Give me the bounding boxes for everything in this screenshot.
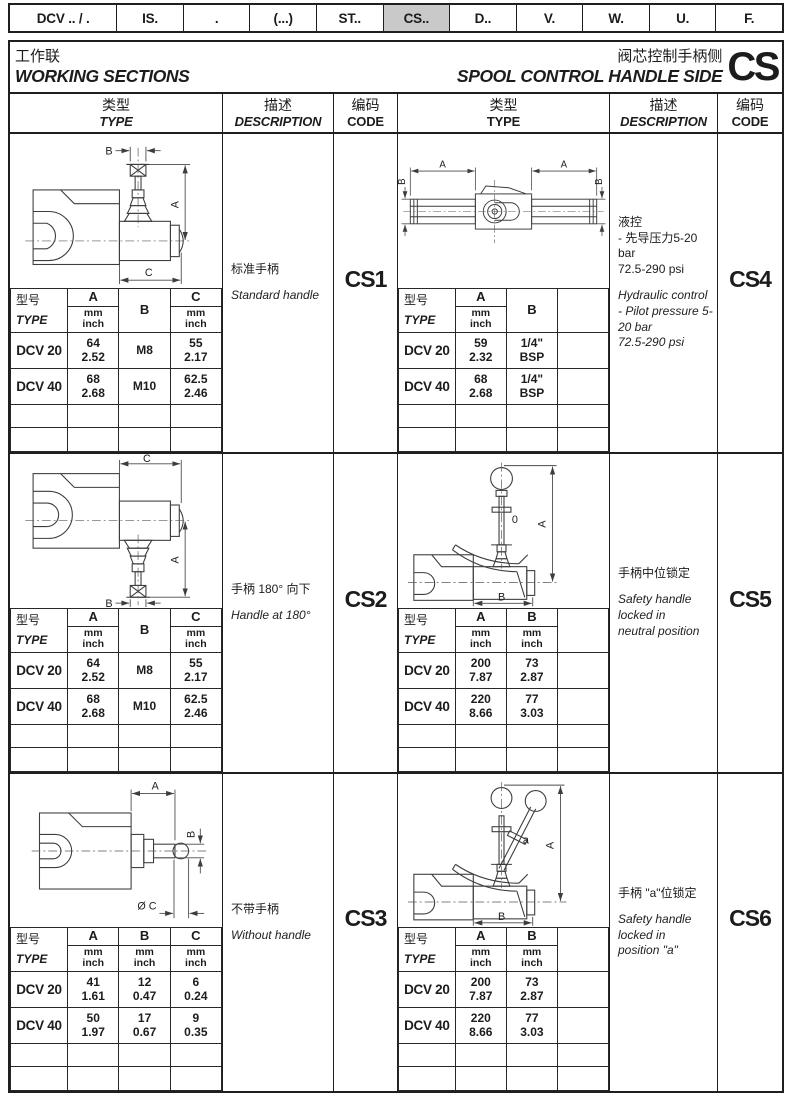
dim-column-letter: B <box>506 927 557 945</box>
dim-column-letter: B <box>119 608 170 652</box>
dim-value: 2007.87 <box>455 972 506 1008</box>
dim-column-letter: A <box>455 608 506 626</box>
dim-value: 120.47 <box>119 972 170 1008</box>
dim-label: A <box>537 520 549 528</box>
dim-value: 732.87 <box>506 653 557 689</box>
section-title-zh: 工作联 <box>15 48 189 65</box>
tab-[interactable]: . <box>184 5 251 31</box>
dim-column-letter: A <box>455 927 506 945</box>
empty-row <box>399 748 609 772</box>
model-code-tab-strip: DCV .. / .IS..(...)ST..CS..D..V.W.U.F. <box>8 3 784 33</box>
dimension-table: 型号TYPEAB mminchDCV 20592.321/4" BSPDCV 4… <box>398 288 609 452</box>
dim-value: 773.03 <box>506 689 557 725</box>
cs1-code-cell: CS1 <box>334 134 398 452</box>
content-row-2: CAB 型号TYPEABC mminchmminchDCV 20642.52M8… <box>10 454 782 774</box>
dim-value: 501.97 <box>67 1008 118 1044</box>
dim-column-units: mminch <box>170 626 221 653</box>
dim-column-letter: A <box>67 288 118 306</box>
table-row: DCV 20411.61120.4760.24 <box>11 972 222 1008</box>
dim-column-letter: B <box>119 927 170 945</box>
empty-row <box>399 1067 609 1091</box>
cs4-description-cell: 液控 - 先导压力5-20 bar 72.5-290 psi Hydraulic… <box>610 134 718 452</box>
section-subtitle: 阀芯控制手柄侧 SPOOL CONTROL HANDLE SIDE <box>457 48 723 85</box>
dim-value: 552.17 <box>170 333 221 369</box>
cs2-drawing: CAB <box>10 454 222 609</box>
cs4-code-label: CS4 <box>729 266 771 293</box>
dim-column-letter: B <box>119 288 170 332</box>
dim-value: M8 <box>119 333 170 369</box>
cs2-type-cell: CAB 型号TYPEABC mminchmminchDCV 20642.52M8… <box>10 454 223 772</box>
cs2-diagram: CAB <box>10 454 222 609</box>
dim-column-units: mminch <box>67 626 118 653</box>
dim-label: B <box>185 831 197 838</box>
dim-column-units: mminch <box>170 945 221 972</box>
dim-column-letter <box>557 288 608 332</box>
dim-column-units: mminch <box>170 306 221 333</box>
table-row: DCV 40682.68M1062.52.46 <box>11 689 222 725</box>
tab-f[interactable]: F. <box>716 5 782 31</box>
dim-value: 682.68 <box>455 369 506 405</box>
cs1-description-zh: 标准手柄 <box>231 262 330 278</box>
dim-column-units: mminch <box>67 306 118 333</box>
model-name: DCV 40 <box>11 689 68 725</box>
dim-column-letter <box>557 608 608 652</box>
cs2-description-cell: 手柄 180° 向下 Handle at 180° <box>223 454 334 772</box>
tab-st[interactable]: ST.. <box>317 5 384 31</box>
cs2-code-label: CS2 <box>345 586 387 613</box>
dim-label: B <box>105 146 112 158</box>
model-name: DCV 40 <box>11 369 68 405</box>
dim-column-units: mminch <box>119 945 170 972</box>
cs6-code-label: CS6 <box>729 905 771 932</box>
dim-value: 170.67 <box>119 1008 170 1044</box>
cs4-description-en: Hydraulic control - Pilot pressure 5-20 … <box>618 288 714 351</box>
model-name: DCV 40 <box>399 689 456 725</box>
cs6-description-cell: 手柄 "a"位锁定 Safety handle locked in positi… <box>610 774 718 1091</box>
section-title: 工作联 WORKING SECTIONS <box>15 48 189 85</box>
dim-column-units: mminch <box>506 945 557 972</box>
dim-label: a <box>523 835 530 847</box>
dim-column-letter: C <box>170 927 221 945</box>
column-header-type-right: 类型 TYPE <box>398 94 610 132</box>
empty-row <box>11 428 222 452</box>
column-header-description-right: 描述 DESCRIPTION <box>610 94 718 132</box>
dim-value <box>557 369 608 405</box>
dim-label: 0 <box>512 514 518 526</box>
dim-value: 592.32 <box>455 333 506 369</box>
tab-cs[interactable]: CS.. <box>384 5 451 31</box>
model-name: DCV 20 <box>399 653 456 689</box>
sheet-header: 工作联 WORKING SECTIONS 阀芯控制手柄侧 SPOOL CONTR… <box>10 42 782 94</box>
dim-value: 90.35 <box>170 1008 221 1044</box>
table-header-row: 型号TYPEAB <box>399 288 609 306</box>
cs4-description-zh: 液控 - 先导压力5-20 bar 72.5-290 psi <box>618 215 714 278</box>
tab-[interactable]: (...) <box>250 5 317 31</box>
dim-column-letter: C <box>170 608 221 626</box>
cs3-type-cell: ABØ C 型号TYPEABC mminchmminchmminchDCV 20… <box>10 774 223 1091</box>
dim-column-letter: A <box>67 927 118 945</box>
catalog-sheet: 工作联 WORKING SECTIONS 阀芯控制手柄侧 SPOOL CONTR… <box>8 40 784 1093</box>
cs5-diagram: AB0 <box>398 454 609 609</box>
model-name: DCV 20 <box>399 972 456 1008</box>
type-corner: 型号TYPE <box>11 608 68 652</box>
dim-value <box>557 972 608 1008</box>
dim-label: C <box>143 454 151 465</box>
cs4-drawing: AABB <box>398 134 609 289</box>
column-header-code-left: 编码 CODE <box>334 94 398 132</box>
dim-value <box>557 689 608 725</box>
catalog-page: DCV .. / .IS..(...)ST..CS..D..V.W.U.F. 工… <box>0 0 792 1101</box>
section-subtitle-zh: 阀芯控制手柄侧 <box>617 48 722 65</box>
dim-value: 62.52.46 <box>170 689 221 725</box>
cs1-type-cell: BAC 型号TYPEABC mminchmminchDCV 20642.52M8… <box>10 134 223 452</box>
type-corner: 型号TYPE <box>399 288 456 332</box>
column-header-description-left: 描述 DESCRIPTION <box>223 94 334 132</box>
table-header-row: 型号TYPEABC <box>11 608 222 626</box>
dim-column-letter <box>557 927 608 971</box>
dim-label: B <box>594 178 605 184</box>
empty-row <box>11 748 222 772</box>
table-header-row: 型号TYPEAB <box>399 927 609 945</box>
dim-value: 411.61 <box>67 972 118 1008</box>
empty-row <box>11 1067 222 1091</box>
tab-u[interactable]: U. <box>650 5 717 31</box>
dim-label: A <box>561 160 568 171</box>
table-row: DCV 402208.66773.03 <box>399 689 609 725</box>
cs1-diagram: BAC <box>10 134 222 289</box>
cs5-type-cell: AB0 型号TYPEAB mminchmminchDCV 202007.8773… <box>398 454 610 772</box>
dim-value: 2007.87 <box>455 653 506 689</box>
cs3-drawing: ABØ C <box>10 774 222 928</box>
cs5-drawing: AB0 <box>398 454 609 609</box>
table-row: DCV 20642.52M8552.17 <box>11 653 222 689</box>
dim-value: 682.68 <box>67 689 118 725</box>
dim-label: A <box>545 841 557 849</box>
cs1-drawing: BAC <box>10 134 222 289</box>
model-name: DCV 40 <box>399 369 456 405</box>
empty-row <box>11 1044 222 1067</box>
empty-row <box>399 405 609 428</box>
dim-value: 642.52 <box>67 653 118 689</box>
dim-column-units: mminch <box>455 626 506 653</box>
cs1-code-label: CS1 <box>345 266 387 293</box>
empty-row <box>399 725 609 748</box>
cs2-description-zh: 手柄 180° 向下 <box>231 582 330 598</box>
cs4-diagram: AABB <box>398 134 609 289</box>
dim-column-letter: B <box>506 288 557 332</box>
dim-value: 60.24 <box>170 972 221 1008</box>
content-row-1: BAC 型号TYPEABC mminchmminchDCV 20642.52M8… <box>10 134 782 454</box>
cs3-diagram: ABØ C <box>10 774 222 928</box>
model-name: DCV 20 <box>11 333 68 369</box>
content-row-3: ABØ C 型号TYPEABC mminchmminchmminchDCV 20… <box>10 774 782 1091</box>
dim-value: 642.52 <box>67 333 118 369</box>
dim-value: 1/4" BSP <box>506 369 557 405</box>
cs4-type-cell: AABB 型号TYPEAB mminchDCV 20592.321/4" BSP… <box>398 134 610 452</box>
table-row: DCV 20642.52M8552.17 <box>11 333 222 369</box>
empty-row <box>399 428 609 452</box>
dim-value <box>557 653 608 689</box>
dim-value: 2208.66 <box>455 1008 506 1044</box>
dim-label: A <box>152 781 160 793</box>
cs3-description-cell: 不带手柄 Without handle <box>223 774 334 1091</box>
empty-row <box>11 725 222 748</box>
empty-row <box>11 405 222 428</box>
dimension-table: 型号TYPEAB mminchmminchDCV 202007.87732.87… <box>398 608 609 772</box>
cs6-drawing: ABa <box>398 774 609 928</box>
table-row: DCV 402208.66773.03 <box>399 1008 609 1044</box>
dim-value: M10 <box>119 689 170 725</box>
dim-value <box>557 333 608 369</box>
dim-label: C <box>145 267 153 279</box>
cs5-description-cell: 手柄中位锁定 Safety handle locked in neutral p… <box>610 454 718 772</box>
table-row: DCV 40501.97170.6790.35 <box>11 1008 222 1044</box>
dimension-table: 型号TYPEABC mminchmminchmminchDCV 20411.61… <box>10 927 222 1091</box>
type-corner: 型号TYPE <box>11 927 68 971</box>
dim-label: Ø C <box>137 900 156 912</box>
table-row: DCV 40682.681/4" BSP <box>399 369 609 405</box>
dimension-table: 型号TYPEABC mminchmminchDCV 20642.52M8552.… <box>10 608 222 772</box>
cs2-description-en: Handle at 180° <box>231 608 330 624</box>
dimension-table: 型号TYPEABC mminchmminchDCV 20642.52M8552.… <box>10 288 222 452</box>
type-corner: 型号TYPE <box>399 927 456 971</box>
tab-d[interactable]: D.. <box>450 5 517 31</box>
dim-value <box>557 1008 608 1044</box>
cs6-description-en: Safety handle locked in position "a" <box>618 912 714 959</box>
table-row: DCV 202007.87732.87 <box>399 653 609 689</box>
cs6-diagram: ABa <box>398 774 609 928</box>
column-header-type-left: 类型 TYPE <box>10 94 223 132</box>
dim-label: B <box>398 178 408 184</box>
table-header-row: 型号TYPEABC <box>11 288 222 306</box>
table-row: DCV 40682.68M1062.52.46 <box>11 369 222 405</box>
dim-value: 2208.66 <box>455 689 506 725</box>
cs1-description-en: Standard handle <box>231 288 330 304</box>
dim-value: 682.68 <box>67 369 118 405</box>
cs3-description-zh: 不带手柄 <box>231 902 330 918</box>
cs6-type-cell: ABa 型号TYPEAB mminchmminchDCV 202007.8773… <box>398 774 610 1091</box>
dim-label: A <box>169 200 181 208</box>
dimension-table: 型号TYPEAB mminchmminchDCV 202007.87732.87… <box>398 927 609 1091</box>
model-name: DCV 20 <box>399 333 456 369</box>
model-name: DCV 40 <box>11 1008 68 1044</box>
table-header-row: 型号TYPEABC <box>11 927 222 945</box>
model-name: DCV 40 <box>399 1008 456 1044</box>
model-name: DCV 20 <box>11 653 68 689</box>
table-row: DCV 20592.321/4" BSP <box>399 333 609 369</box>
cs3-code-cell: CS3 <box>334 774 398 1091</box>
type-corner: 型号TYPE <box>11 288 68 332</box>
column-header-code-right: 编码 CODE <box>718 94 782 132</box>
type-corner: 型号TYPE <box>399 608 456 652</box>
dim-column-letter: A <box>67 608 118 626</box>
cs2-code-cell: CS2 <box>334 454 398 772</box>
dim-label: B <box>498 911 505 923</box>
table-header-row: 型号TYPEAB <box>399 608 609 626</box>
dim-column-letter: A <box>455 288 506 306</box>
dim-column-letter: B <box>506 608 557 626</box>
cs4-code-cell: CS4 <box>718 134 782 452</box>
model-name: DCV 20 <box>11 972 68 1008</box>
dim-column-letter: C <box>170 288 221 306</box>
dim-value: 1/4" BSP <box>506 333 557 369</box>
tab-w[interactable]: W. <box>583 5 650 31</box>
tab-is[interactable]: IS. <box>117 5 184 31</box>
cs5-description-en: Safety handle locked in neutral position <box>618 592 714 639</box>
dim-value: 773.03 <box>506 1008 557 1044</box>
dim-value: 552.17 <box>170 653 221 689</box>
empty-row <box>399 1044 609 1067</box>
column-headers: 类型 TYPE 描述 DESCRIPTION 编码 CODE 类型 TYPE 描… <box>10 94 782 134</box>
dim-label: A <box>439 160 446 171</box>
cs3-code-label: CS3 <box>345 905 387 932</box>
cs6-description-zh: 手柄 "a"位锁定 <box>618 886 714 902</box>
section-code: CS <box>727 49 780 85</box>
cs3-description-en: Without handle <box>231 928 330 944</box>
dim-column-units: mminch <box>506 626 557 653</box>
section-subtitle-en: SPOOL CONTROL HANDLE SIDE <box>457 66 723 86</box>
dim-value: 732.87 <box>506 972 557 1008</box>
cs6-code-cell: CS6 <box>718 774 782 1091</box>
table-row: DCV 202007.87732.87 <box>399 972 609 1008</box>
dim-value: 62.52.46 <box>170 369 221 405</box>
tab-v[interactable]: V. <box>517 5 584 31</box>
dim-value: M10 <box>119 369 170 405</box>
dim-value: M8 <box>119 653 170 689</box>
dim-column-units: mminch <box>67 945 118 972</box>
dim-column-units: mminch <box>455 306 506 333</box>
section-title-en: WORKING SECTIONS <box>15 66 189 86</box>
dim-column-units: mminch <box>455 945 506 972</box>
content-grid: BAC 型号TYPEABC mminchmminchDCV 20642.52M8… <box>10 134 782 1091</box>
dim-label: B <box>498 591 505 603</box>
cs5-description-zh: 手柄中位锁定 <box>618 566 714 582</box>
cs5-code-cell: CS5 <box>718 454 782 772</box>
dim-label: A <box>169 556 181 564</box>
tab-dcv[interactable]: DCV .. / . <box>10 5 117 31</box>
cs5-code-label: CS5 <box>729 586 771 613</box>
cs1-description-cell: 标准手柄 Standard handle <box>223 134 334 452</box>
